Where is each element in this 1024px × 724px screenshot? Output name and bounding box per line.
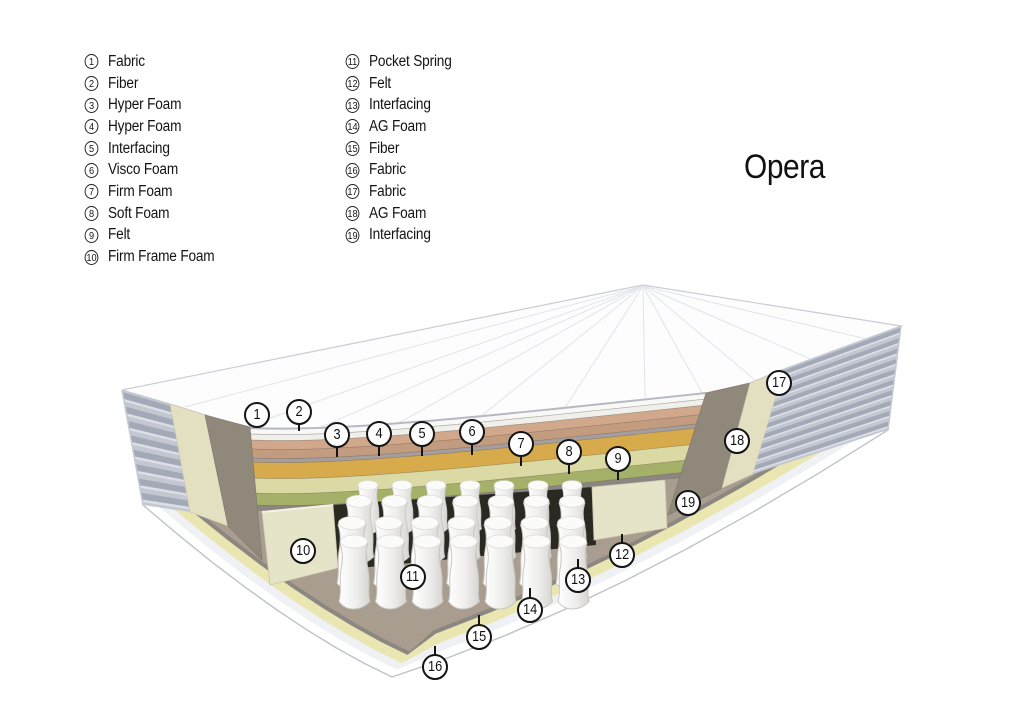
callout-number: 8	[565, 444, 572, 460]
callout-19: 19	[675, 490, 701, 516]
callout-number: 14	[523, 602, 537, 618]
callout-14: 14	[517, 597, 543, 623]
callout-number: 17	[772, 375, 786, 391]
callout-tick	[568, 463, 570, 474]
callout-16: 16	[422, 654, 448, 680]
callout-tick	[577, 559, 579, 569]
callout-10: 10	[290, 538, 316, 564]
callout-4: 4	[366, 421, 392, 447]
callout-number: 16	[428, 659, 442, 675]
callout-3: 3	[324, 422, 350, 448]
callout-2: 2	[286, 399, 312, 425]
pocket-spring	[339, 535, 370, 609]
callout-number: 1	[253, 407, 260, 423]
callout-1: 1	[244, 402, 270, 428]
callout-number: 19	[681, 495, 695, 511]
callout-12: 12	[609, 542, 635, 568]
callout-number: 11	[406, 569, 419, 585]
callout-18: 18	[724, 428, 750, 454]
pocket-spring	[485, 535, 516, 609]
callout-6: 6	[459, 419, 485, 445]
callout-17: 17	[766, 370, 792, 396]
callout-7: 7	[508, 431, 534, 457]
callout-number: 18	[730, 433, 744, 449]
callout-tick	[621, 534, 623, 544]
callout-number: 15	[472, 629, 486, 645]
callout-tick	[378, 445, 380, 456]
pocket-spring	[449, 535, 480, 609]
callout-15: 15	[466, 624, 492, 650]
callout-number: 6	[468, 424, 475, 440]
callout-tick	[298, 423, 300, 431]
callout-number: 12	[615, 547, 629, 563]
callout-number: 7	[517, 436, 524, 452]
callout-tick	[471, 443, 473, 455]
callout-13: 13	[565, 567, 591, 593]
callout-8: 8	[556, 439, 582, 465]
callout-tick	[617, 470, 619, 480]
callout-number: 9	[614, 451, 621, 467]
callout-number: 3	[333, 427, 340, 443]
mattress-infographic-page: 1Fabric2Fiber3Hyper Foam4Hyper Foam5Inte…	[0, 0, 1024, 724]
callout-number: 4	[375, 426, 382, 442]
callout-5: 5	[409, 421, 435, 447]
callout-number: 5	[418, 426, 425, 442]
mattress-cutaway-illustration	[0, 0, 1024, 724]
callout-11: 11	[400, 564, 426, 590]
callout-tick	[421, 445, 423, 456]
callout-tick	[336, 446, 338, 457]
callout-number: 13	[571, 572, 585, 588]
callout-tick	[478, 615, 480, 626]
callout-number: 10	[296, 543, 310, 559]
callout-number: 2	[295, 404, 302, 420]
callout-tick	[434, 646, 436, 656]
callout-tick	[520, 455, 522, 466]
callout-tick	[529, 588, 531, 599]
callout-9: 9	[605, 446, 631, 472]
